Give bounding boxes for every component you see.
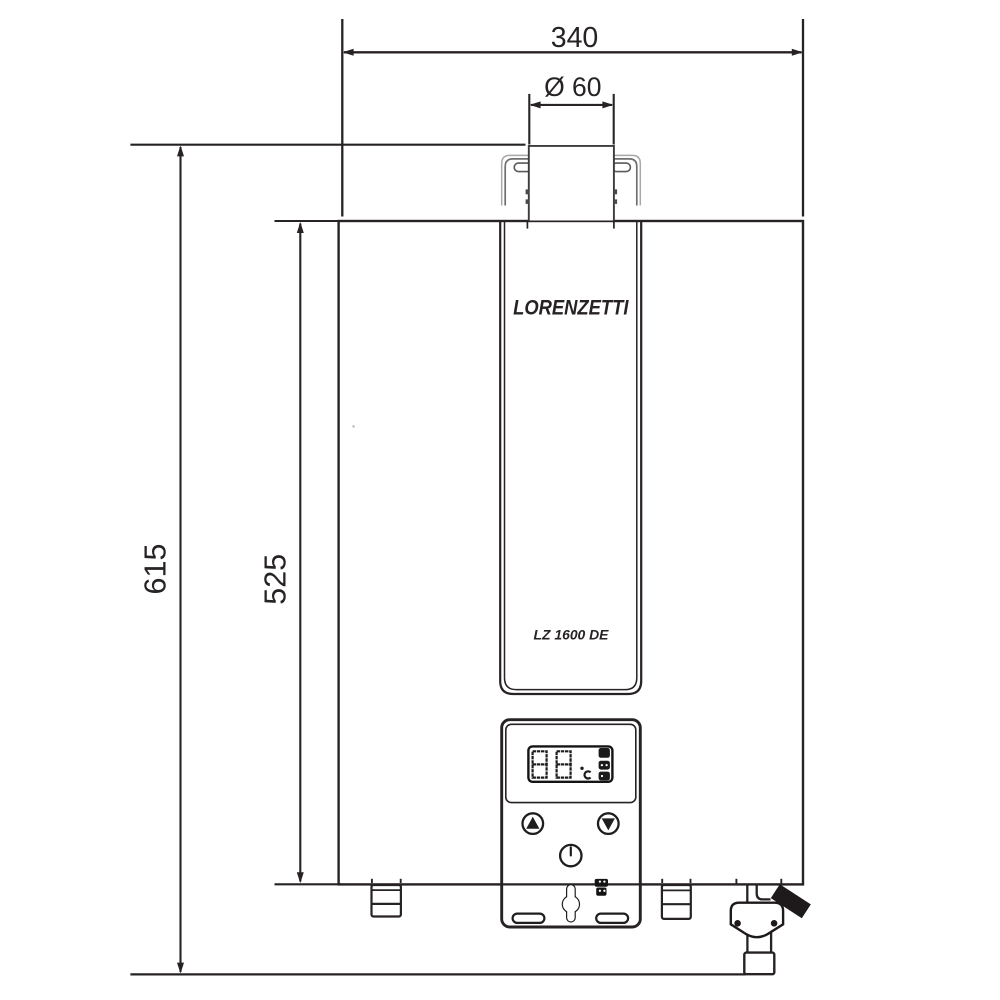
svg-text:525: 525 [259, 554, 293, 605]
svg-text:LORENZETTI: LORENZETTI [513, 296, 629, 320]
svg-text:340: 340 [551, 22, 599, 54]
svg-text:Ø 60: Ø 60 [544, 72, 601, 102]
svg-text:615: 615 [139, 544, 173, 595]
svg-text:LZ 1600 DE: LZ 1600 DE [534, 627, 610, 643]
